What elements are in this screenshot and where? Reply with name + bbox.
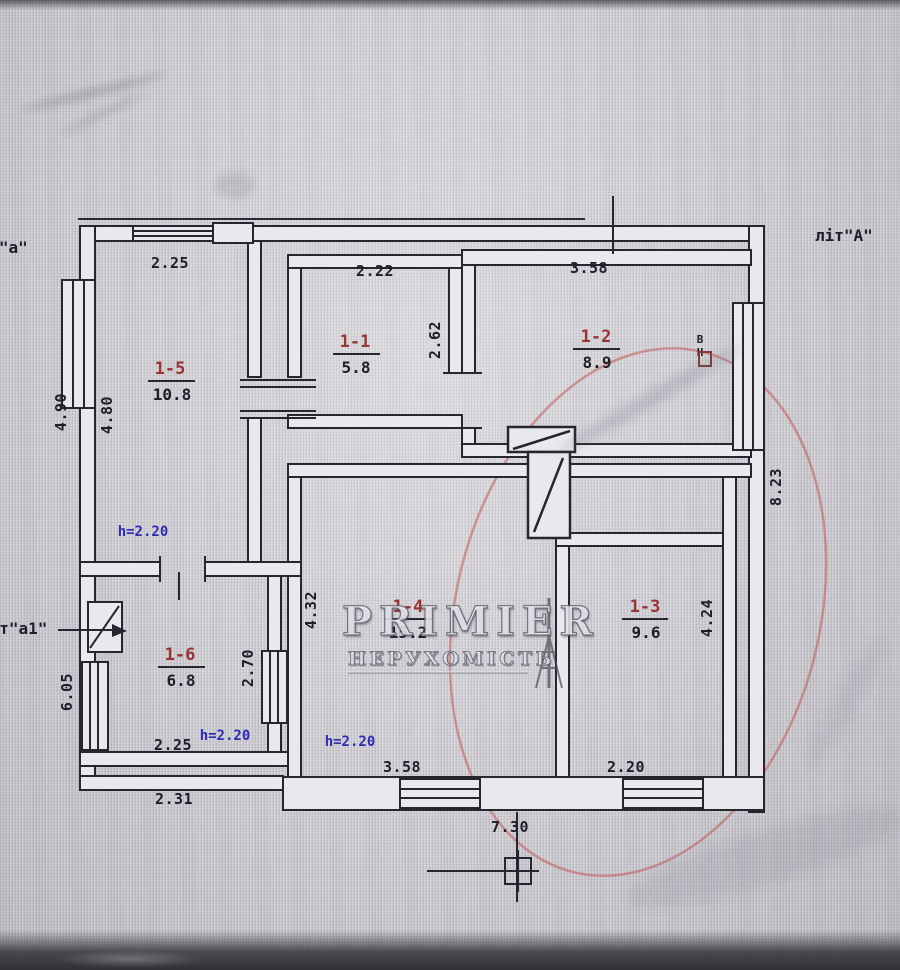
- room-area-1-2: 8.9: [583, 353, 612, 372]
- floor-plan-svg: 2.25 2.22 3.58 4.90 4.80 2.62 8.23 4.32 …: [0, 0, 900, 970]
- building-label-top-right: літ"А": [815, 226, 873, 245]
- room-label-1-2: 1-2 8.9: [573, 327, 620, 372]
- dim-room14-width: 3.58: [383, 758, 421, 776]
- room-area-1-1: 5.8: [342, 358, 371, 377]
- dim-left-outer-height: 4.90: [52, 393, 70, 431]
- watermark-title: PRIMIER: [342, 598, 600, 645]
- entrance-door-symbol: [58, 602, 127, 652]
- stove-symbols: [508, 427, 575, 538]
- room-label-1-6: 1-6 6.8: [158, 645, 205, 690]
- crosshair-marker: [497, 850, 539, 892]
- photo-top-edge: [0, 0, 900, 10]
- dim-room15-height: 4.80: [98, 396, 116, 434]
- dim-bottom-left-width: 2.31: [155, 790, 193, 808]
- ceiling-height-room14: h=2.20: [325, 734, 376, 750]
- room-number-1-5: 1-5: [155, 359, 186, 379]
- dim-left-lower-height: 6.05: [58, 673, 76, 711]
- room-area-1-5: 10.8: [153, 385, 192, 404]
- ceiling-height-room15: h=2.20: [118, 524, 169, 540]
- dim-room11-width: 2.22: [356, 262, 394, 280]
- room-number-1-6: 1-6: [165, 645, 196, 665]
- room-label-1-3: 1-3 9.6: [622, 597, 668, 642]
- interior-walls: [80, 241, 751, 777]
- dim-right-outer-height: 8.23: [767, 468, 785, 506]
- room-number-1-3: 1-3: [630, 597, 661, 617]
- building-label-side-left: літ"а1": [0, 619, 47, 638]
- building-label-top-left: літ"а": [0, 238, 28, 257]
- watermark-subtitle: НЕРУХОМІСТЬ: [348, 648, 555, 670]
- dim-room16-height: 2.70: [239, 649, 257, 687]
- dim-room16-width: 2.25: [154, 736, 192, 754]
- room-number-1-1: 1-1: [340, 332, 371, 352]
- room-label-1-1: 1-1 5.8: [333, 332, 380, 377]
- window-symbols: [62, 223, 764, 808]
- dim-room12-width: 3.58: [570, 259, 608, 277]
- dim-bottom-total-width: 7.30: [491, 818, 529, 836]
- room-area-1-3: 9.6: [632, 623, 661, 642]
- dim-room11-height: 2.62: [426, 321, 444, 359]
- watermark-underline: [348, 671, 528, 674]
- dim-room14-height: 4.32: [302, 591, 320, 629]
- outer-walls: [80, 226, 764, 812]
- dim-room15-width: 2.25: [151, 254, 189, 272]
- room-label-1-5: 1-5 10.8: [148, 359, 195, 404]
- room-area-1-6: 6.8: [167, 671, 196, 690]
- photo-bottom-edge: [0, 930, 900, 970]
- vn-marker: ВН: [694, 333, 712, 366]
- dim-room13-window-width: 2.20: [607, 758, 645, 776]
- screen-photo: 2.25 2.22 3.58 4.90 4.80 2.62 8.23 4.32 …: [0, 0, 900, 970]
- ceiling-height-room16: h=2.20: [200, 728, 251, 744]
- room-number-1-2: 1-2: [581, 327, 612, 347]
- dim-room13-height: 4.24: [698, 599, 716, 637]
